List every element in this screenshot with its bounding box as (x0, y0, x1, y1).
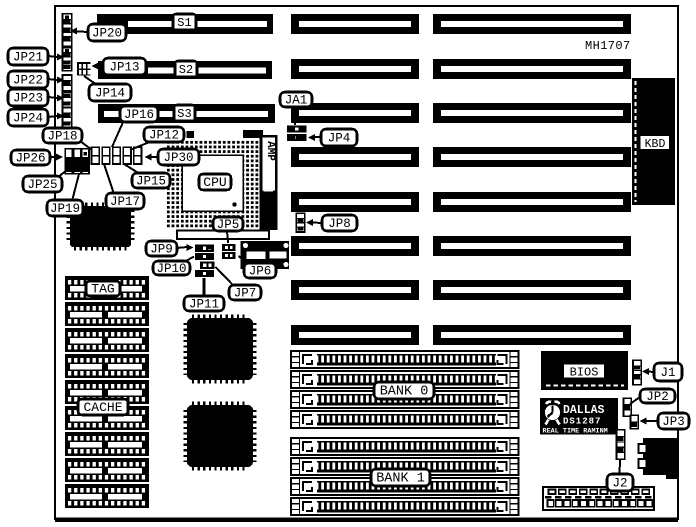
svg-text:JP17: JP17 (110, 195, 140, 209)
svg-text:J2: J2 (612, 477, 627, 491)
svg-text:JP5: JP5 (217, 218, 240, 232)
svg-text:JP12: JP12 (149, 129, 179, 143)
svg-text:JP21: JP21 (13, 51, 43, 65)
svg-text:BANK 0: BANK 0 (380, 385, 429, 400)
svg-text:J1: J1 (660, 366, 675, 380)
svg-text:JP15: JP15 (136, 175, 166, 189)
svg-text:KBD: KBD (645, 138, 666, 151)
svg-text:JP30: JP30 (163, 151, 193, 165)
svg-text:JP25: JP25 (27, 178, 57, 192)
svg-text:S2: S2 (179, 63, 193, 77)
svg-text:JA1: JA1 (285, 94, 308, 108)
svg-text:JP2: JP2 (646, 390, 669, 404)
svg-text:JP20: JP20 (92, 27, 122, 41)
svg-text:S1: S1 (177, 16, 191, 30)
svg-text:JP7: JP7 (234, 287, 257, 301)
svg-text:JP10: JP10 (156, 262, 186, 276)
svg-text:JP23: JP23 (13, 92, 43, 106)
svg-text:JP26: JP26 (15, 152, 45, 166)
svg-text:JP18: JP18 (47, 130, 77, 144)
svg-text:JP8: JP8 (328, 217, 351, 231)
svg-text:JP19: JP19 (50, 202, 80, 216)
svg-text:REAL TIME RAMINM: REAL TIME RAMINM (543, 428, 608, 436)
svg-text:JP6: JP6 (249, 265, 272, 279)
svg-text:DS1287: DS1287 (563, 417, 601, 427)
svg-text:JP13: JP13 (109, 61, 139, 75)
svg-text:JP14: JP14 (95, 87, 125, 101)
svg-text:CPU: CPU (203, 175, 226, 190)
svg-text:BANK 1: BANK 1 (376, 472, 425, 487)
svg-text:JP11: JP11 (189, 298, 219, 312)
svg-text:MH1707: MH1707 (585, 39, 631, 53)
svg-text:AMP: AMP (264, 141, 276, 161)
svg-text:DALLAS: DALLAS (563, 404, 605, 417)
svg-text:CACHE: CACHE (83, 400, 122, 415)
svg-text:TAG: TAG (91, 282, 114, 297)
svg-text:JP3: JP3 (662, 415, 685, 429)
svg-text:S3: S3 (177, 107, 191, 121)
svg-text:JP16: JP16 (124, 108, 154, 122)
svg-text:JP9: JP9 (150, 243, 173, 257)
svg-text:JP22: JP22 (13, 74, 43, 88)
svg-text:JP4: JP4 (328, 132, 351, 146)
svg-text:BIOS: BIOS (570, 366, 599, 380)
svg-text:JP24: JP24 (13, 112, 43, 126)
